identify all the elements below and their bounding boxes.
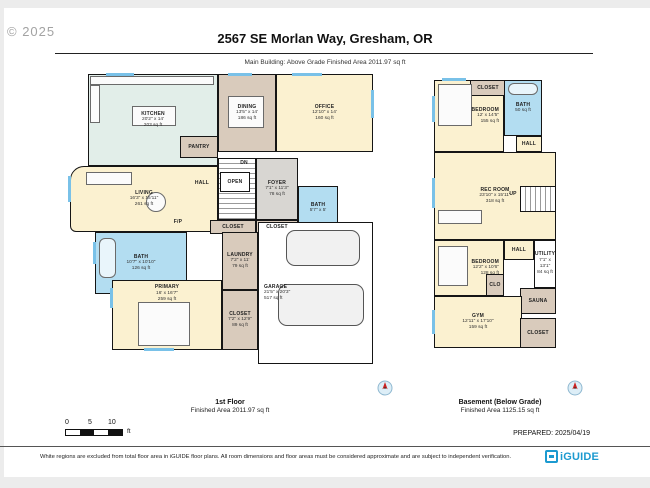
building-subtitle: Main Building: Above Grade Finished Area… <box>0 59 650 66</box>
room-pantry: PANTRY <box>180 136 218 158</box>
sofa-icon <box>86 172 132 185</box>
scale-bar: 0 5 10 ft <box>65 419 155 427</box>
window-icon <box>110 288 113 308</box>
disclaimer-text: White regions are excluded from total fl… <box>40 454 540 460</box>
room-label: LAUNDRY7'2" x 11'79 sq ft <box>227 252 253 271</box>
scale-label-5: 5 <box>88 419 92 426</box>
room-label: BEDROOM12'2" x 10'6"128 sq ft <box>471 259 499 278</box>
bed-icon <box>138 302 190 346</box>
scale-strip <box>65 429 123 436</box>
room-label: DINING13'5" x 14'186 sq ft <box>236 104 258 123</box>
counter-icon <box>90 85 100 123</box>
page-margin-left <box>0 0 4 488</box>
room-sauna: SAUNA <box>520 288 556 314</box>
room-label: FOYER7'1" x 11'3"78 sq ft <box>265 180 288 199</box>
window-icon <box>371 90 374 118</box>
compass-icon <box>377 380 393 396</box>
floor-name: Basement (Below Grade) <box>400 399 600 406</box>
room-utility: UTILITY7'1" x 13'1"84 sq ft <box>534 240 556 288</box>
tub-icon <box>508 83 538 95</box>
room-gym: GYM12'11" x 17'10"159 sq ft <box>434 296 522 348</box>
room-hall: HALL <box>188 178 216 188</box>
room-open-stair: OPEN <box>220 172 250 192</box>
window-icon <box>432 310 435 334</box>
footer-divider <box>0 446 650 447</box>
counter-icon <box>90 76 214 85</box>
room-label: UTILITY7'1" x 13'1"84 sq ft <box>535 251 555 276</box>
room-stairs-up <box>520 186 556 212</box>
room-label: CLOSET7'2" x 12'9"89 sq ft <box>228 311 252 330</box>
room-closet-upper: CLOSET <box>470 80 506 96</box>
scale-label-0: 0 <box>65 419 69 426</box>
room-label: CLOSET <box>266 224 287 231</box>
window-icon <box>68 176 71 202</box>
tub-icon <box>99 238 116 278</box>
iguide-logo-icon <box>545 450 558 463</box>
room-closet-basement: CLOSET <box>520 318 556 348</box>
first-floor-plan: KITCHEN20'2" x 14'203 sq ftDINING13'5" x… <box>60 74 373 374</box>
room-label: GYM12'11" x 17'10"159 sq ft <box>462 313 493 332</box>
room-hall-upper: HALL <box>516 136 542 152</box>
room-up: UP <box>506 190 520 199</box>
sofa-icon <box>438 210 482 224</box>
room-label: F/P <box>174 219 182 226</box>
room-closet-primary: CLOSET7'2" x 12'9"89 sq ft <box>222 290 258 350</box>
room-label: PANTRY <box>188 144 209 151</box>
window-icon <box>228 73 252 76</box>
window-icon <box>432 178 435 208</box>
bed-icon <box>438 246 468 286</box>
window-icon <box>292 73 322 76</box>
room-label: SAUNA <box>529 298 548 305</box>
room-label: HALL <box>195 180 209 187</box>
window-icon <box>144 348 174 351</box>
compass-icon <box>567 380 583 396</box>
car-icon <box>286 230 360 266</box>
room-laundry: LAUNDRY7'2" x 11'79 sq ft <box>222 232 258 290</box>
iguide-logo: iGUIDE <box>545 450 599 463</box>
floor-area: Finished Area 2011.97 sq ft <box>130 407 330 414</box>
car-icon <box>278 284 364 326</box>
basement-caption: Basement (Below Grade) Finished Area 112… <box>400 399 600 414</box>
room-label: CLOSET <box>527 330 548 337</box>
room-fireplace: F/P <box>168 218 188 227</box>
room-dining: DINING13'5" x 14'186 sq ft <box>218 74 276 152</box>
bed-icon <box>438 84 472 126</box>
room-label: HALL <box>522 141 536 148</box>
room-label: BATH5'7" x 5' <box>310 202 327 215</box>
room-office: OFFICE12'10" x 14'160 sq ft <box>276 74 373 152</box>
room-hall-mid: HALL <box>504 240 534 260</box>
window-icon <box>106 73 134 76</box>
first-floor-caption: 1st Floor Finished Area 2011.97 sq ft <box>130 399 330 414</box>
room-label: KITCHEN20'2" x 14'203 sq ft <box>141 111 165 130</box>
window-icon <box>442 78 466 81</box>
page-margin-bottom <box>0 477 650 488</box>
scale-label-10: 10 <box>108 419 116 426</box>
window-icon <box>432 96 435 122</box>
page-title: 2567 SE Morlan Way, Gresham, OR <box>0 31 650 46</box>
page-margin-top <box>0 0 650 8</box>
basement-plan: BEDROOM12' x 14'5"155 sq ftCLOSETBATH50 … <box>432 78 558 350</box>
room-label: BEDROOM12' x 14'5"155 sq ft <box>471 107 499 126</box>
room-label: CLO <box>489 282 500 289</box>
iguide-logo-text: iGUIDE <box>560 451 599 463</box>
floor-name: 1st Floor <box>130 399 330 406</box>
room-label: BATH10'7" x 10'10"126 sq ft <box>127 254 156 273</box>
title-divider <box>55 53 593 54</box>
floor-area: Finished Area 1125.15 sq ft <box>400 407 600 414</box>
room-label: GARAGE21'5" x 20'3"517 sq ft <box>264 284 290 303</box>
window-icon <box>93 242 96 264</box>
room-label: PRIMARY16' x 16'7"259 sq ft <box>155 284 179 303</box>
room-label: HALL <box>512 247 526 254</box>
room-label: OFFICE12'10" x 14'160 sq ft <box>312 104 337 123</box>
room-foyer: FOYER7'1" x 11'3"78 sq ft <box>256 158 298 220</box>
room-label: LIVING16'3" x 15'11"261 sq ft <box>130 190 159 209</box>
prepared-date: PREPARED: 2025/04/19 <box>420 430 590 437</box>
room-dn: DN <box>234 159 254 168</box>
room-label: CLOSET <box>222 224 243 231</box>
room-label: UP <box>509 191 516 198</box>
room-label: CLOSET <box>477 85 498 92</box>
scale-labels: 0 5 10 <box>65 419 155 427</box>
room-label: DN <box>240 160 248 167</box>
room-label: BATH50 sq ft <box>515 102 531 115</box>
scale-unit: ft <box>127 428 131 435</box>
room-label: OPEN <box>228 179 243 186</box>
